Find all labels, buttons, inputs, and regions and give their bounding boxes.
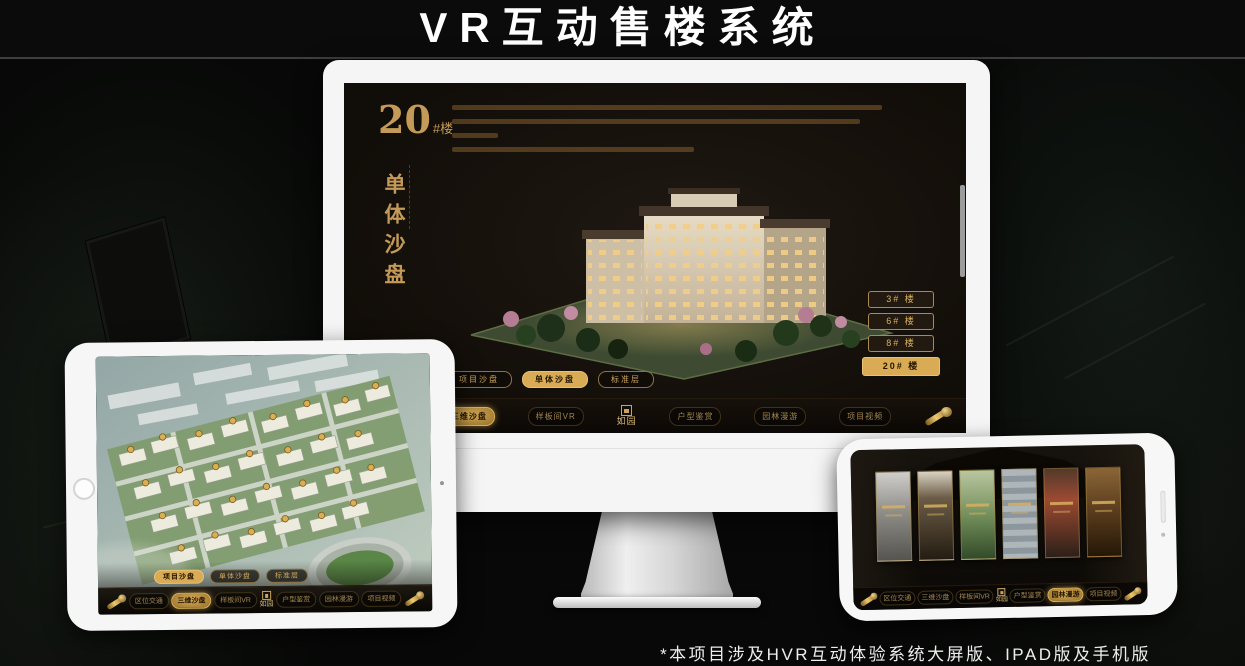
tab-standard-floor[interactable]: 标准层 <box>598 371 654 388</box>
decorative-vertical-line <box>409 165 410 229</box>
tab-single-sandtable[interactable]: 单体沙盘 <box>210 569 260 584</box>
phone-speaker-slot <box>1160 491 1166 523</box>
tablet-view-tab-group: 项目沙盘 单体沙盘 标准层 <box>154 569 308 585</box>
tab-standard-floor[interactable]: 标准层 <box>266 569 308 583</box>
phone-screen: 区位交通 三维沙盘 样板间VR 如园 户型鉴赏 园林漫游 项目视频 <box>850 444 1147 610</box>
nav-item-showroom-vr[interactable]: 样板间VR <box>528 407 584 426</box>
scroll-menu-icon[interactable] <box>859 592 877 605</box>
tab-project-sandtable[interactable]: 项目沙盘 <box>154 570 204 585</box>
phone-bottom-nav: 区位交通 三维沙盘 样板间VR 如园 户型鉴赏 园林漫游 项目视频 <box>853 581 1147 610</box>
tab-single-sandtable[interactable]: 单体沙盘 <box>522 371 588 388</box>
phone-device: 区位交通 三维沙盘 样板间VR 如园 户型鉴赏 园林漫游 项目视频 <box>836 432 1178 621</box>
brand-logo-text: 如园 <box>617 417 637 426</box>
seal-logo-icon <box>621 405 632 416</box>
floor-button-group: 3# 楼 6# 楼 8# 楼 20# 楼 <box>862 291 940 376</box>
nav-item-project-video[interactable]: 项目视频 <box>839 407 891 426</box>
scroll-end-part <box>417 591 425 599</box>
brand-logo: 如园 <box>996 588 1008 604</box>
camera-icon <box>440 481 444 485</box>
home-button[interactable] <box>73 478 95 500</box>
scene-card-sublabel <box>1053 511 1070 513</box>
nav-item-3d-sandtable[interactable]: 三维沙盘 <box>171 593 211 609</box>
text-line <box>452 119 860 124</box>
scroll-end-part <box>941 407 952 417</box>
page: VR互动售楼系统 20#楼 单体沙盘 <box>0 0 1245 666</box>
text-line <box>452 133 498 138</box>
tablet-screen: 项目沙盘 单体沙盘 标准层 区位交通 三维沙盘 样板间VR 如园 <box>96 353 433 614</box>
building-3d-viewport[interactable] <box>456 143 901 383</box>
nav-item-floorplans[interactable]: 户型鉴赏 <box>669 407 721 426</box>
scene-card-sublabel <box>1095 510 1112 512</box>
nav-item-garden-roam[interactable]: 园林漫游 <box>754 407 806 426</box>
building-heading: 20#楼 <box>378 97 453 142</box>
scene-card-sublabel <box>927 514 944 516</box>
monitor-stand <box>581 510 733 600</box>
scrollbar[interactable] <box>960 185 965 277</box>
floor-button-6[interactable]: 6# 楼 <box>868 313 934 330</box>
seal-logo-icon <box>262 591 271 600</box>
brand-logo: 如园 <box>617 405 637 426</box>
scene-card-label <box>1050 502 1073 505</box>
scroll-menu-icon[interactable] <box>106 594 126 608</box>
brand-logo: 如园 <box>259 591 273 608</box>
text-line <box>452 105 882 110</box>
page-title: VR互动售楼系统 <box>0 0 1245 58</box>
tablet-device: 项目沙盘 单体沙盘 标准层 区位交通 三维沙盘 样板间VR 如园 <box>65 339 458 631</box>
building-number: 20 <box>378 97 431 142</box>
scene-card-sublabel <box>885 514 902 516</box>
scene-card-label <box>924 505 947 508</box>
scene-card[interactable] <box>959 469 996 560</box>
scene-card[interactable] <box>1043 467 1080 558</box>
nav-item-3d-sandtable[interactable]: 三维沙盘 <box>917 590 953 605</box>
nav-item-location[interactable]: 区位交通 <box>879 591 915 606</box>
scene-card[interactable] <box>917 470 954 561</box>
scene-card[interactable] <box>875 471 912 562</box>
scroll-end-part <box>871 592 878 600</box>
scroll-end-part <box>1134 587 1141 595</box>
tablet-frame: 项目沙盘 单体沙盘 标准层 区位交通 三维沙盘 样板间VR 如园 <box>65 339 458 631</box>
scroll-menu-icon[interactable] <box>1123 587 1141 600</box>
scroll-menu-icon[interactable] <box>404 591 424 605</box>
nav-item-showroom-vr[interactable]: 样板间VR <box>955 589 994 604</box>
tab-project-sandtable[interactable]: 项目沙盘 <box>446 371 512 388</box>
nav-item-location[interactable]: 区位交通 <box>129 593 169 609</box>
nav-item-floorplans[interactable]: 户型鉴赏 <box>276 591 316 607</box>
scene-card-label <box>966 504 989 507</box>
building-subtitle: 单体沙盘 <box>379 173 409 363</box>
monitor-base <box>553 597 761 608</box>
nav-item-floorplans[interactable]: 户型鉴赏 <box>1010 588 1046 603</box>
scene-card-label <box>1092 501 1115 504</box>
footnote: *本项目涉及HVR互动体验系统大屏版、IPAD版及手机版 <box>660 640 1151 665</box>
floor-button-8[interactable]: 8# 楼 <box>868 335 934 352</box>
scene-card[interactable] <box>1001 468 1038 559</box>
nav-item-garden-roam[interactable]: 园林漫游 <box>1047 587 1083 602</box>
seal-logo-icon <box>998 588 1006 596</box>
nav-item-project-video[interactable]: 项目视频 <box>361 591 401 607</box>
floor-button-20[interactable]: 20# 楼 <box>862 357 940 376</box>
scene-card-label <box>882 506 905 509</box>
tablet-bottom-nav: 区位交通 三维沙盘 样板间VR 如园 户型鉴赏 园林漫游 项目视频 <box>98 584 432 614</box>
nav-item-showroom-vr[interactable]: 样板间VR <box>214 592 257 608</box>
brand-logo-text: 如园 <box>996 597 1008 604</box>
scroll-end-part <box>119 594 127 602</box>
scroll-menu-icon[interactable] <box>924 407 952 425</box>
camera-icon <box>1161 533 1165 537</box>
nav-item-garden-roam[interactable]: 园林漫游 <box>319 591 359 607</box>
scene-card-strip <box>875 467 1122 562</box>
floor-button-3[interactable]: 3# 楼 <box>868 291 934 308</box>
nav-item-project-video[interactable]: 项目视频 <box>1085 587 1121 602</box>
scene-card-sublabel <box>969 513 986 515</box>
phone-frame: 区位交通 三维沙盘 样板间VR 如园 户型鉴赏 园林漫游 项目视频 <box>836 432 1178 621</box>
scene-card-sublabel <box>1011 512 1028 514</box>
scene-card-label <box>1008 503 1031 506</box>
brand-logo-text: 如园 <box>260 601 274 608</box>
scene-card[interactable] <box>1085 467 1122 558</box>
building-number-suffix: #楼 <box>433 121 453 136</box>
view-tab-group: 项目沙盘 单体沙盘 标准层 <box>446 371 654 388</box>
